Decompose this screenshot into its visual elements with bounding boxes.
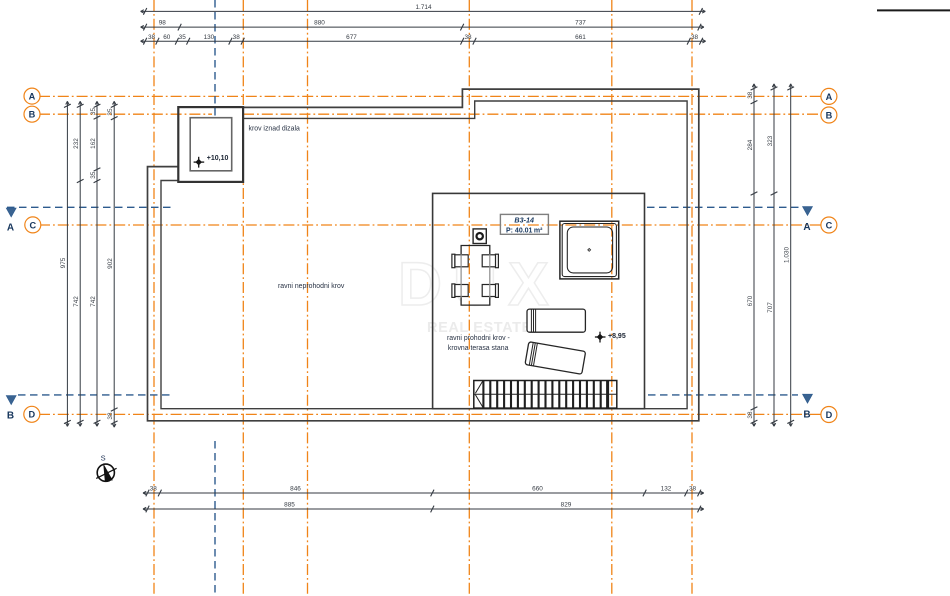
svg-text:1.030: 1.030 (784, 247, 791, 263)
svg-text:P: 40.01 m²: P: 40.01 m² (506, 228, 543, 235)
svg-text:B: B (29, 110, 36, 120)
svg-text:C: C (826, 220, 833, 230)
svg-text:krovna terasa stana: krovna terasa stana (448, 345, 509, 352)
svg-text:162: 162 (90, 138, 97, 149)
svg-text:1.714: 1.714 (416, 4, 432, 11)
svg-text:737: 737 (575, 20, 586, 27)
svg-text:A: A (826, 92, 833, 102)
svg-text:38: 38 (150, 486, 158, 493)
svg-text:D: D (826, 410, 833, 420)
svg-text:885: 885 (284, 502, 295, 509)
svg-text:232: 232 (73, 138, 80, 149)
svg-text:661: 661 (575, 34, 586, 41)
svg-text:35: 35 (107, 108, 114, 116)
svg-text:38: 38 (747, 411, 754, 419)
svg-text:A: A (7, 223, 14, 234)
svg-text:660: 660 (532, 486, 543, 493)
svg-text:323: 323 (767, 135, 774, 146)
svg-text:B: B (826, 110, 833, 120)
svg-text:38: 38 (107, 412, 114, 420)
svg-text:B: B (803, 410, 810, 421)
svg-text:670: 670 (747, 295, 754, 306)
svg-text:742: 742 (90, 296, 97, 307)
svg-text:krov iznad dizala: krov iznad dizala (249, 125, 300, 132)
svg-text:829: 829 (561, 502, 572, 509)
svg-text:846: 846 (290, 486, 301, 493)
svg-text:38: 38 (689, 486, 697, 493)
svg-text:35: 35 (179, 34, 187, 41)
svg-text:38: 38 (148, 34, 156, 41)
svg-text:38: 38 (233, 34, 241, 41)
svg-text:35: 35 (90, 108, 97, 116)
svg-text:130: 130 (204, 34, 215, 41)
svg-text:38: 38 (691, 34, 699, 41)
svg-text:975: 975 (60, 257, 67, 268)
svg-text:+8,95: +8,95 (608, 333, 626, 340)
svg-text:284: 284 (747, 139, 754, 150)
svg-text:880: 880 (314, 20, 325, 27)
svg-text:+10,10: +10,10 (207, 155, 229, 162)
svg-text:A: A (803, 222, 810, 233)
svg-text:707: 707 (767, 302, 774, 313)
svg-text:ravni prohodni krov -: ravni prohodni krov - (447, 335, 510, 342)
svg-text:902: 902 (107, 258, 114, 269)
svg-text:60: 60 (163, 34, 171, 41)
svg-text:98: 98 (159, 20, 167, 27)
svg-text:ravni neprohodni krov: ravni neprohodni krov (278, 283, 345, 290)
svg-text:B: B (7, 411, 14, 422)
svg-text:C: C (29, 220, 36, 230)
svg-text:A: A (29, 92, 36, 102)
svg-text:742: 742 (73, 296, 80, 307)
svg-text:S: S (101, 453, 106, 462)
svg-text:38: 38 (464, 34, 472, 41)
svg-text:38: 38 (747, 91, 754, 99)
svg-text:132: 132 (661, 486, 672, 493)
svg-text:D: D (28, 410, 35, 420)
svg-text:B3-14: B3-14 (514, 216, 534, 225)
svg-text:677: 677 (346, 34, 357, 41)
svg-text:35: 35 (90, 171, 97, 179)
svg-text:REAL ESTATE: REAL ESTATE (427, 320, 532, 336)
